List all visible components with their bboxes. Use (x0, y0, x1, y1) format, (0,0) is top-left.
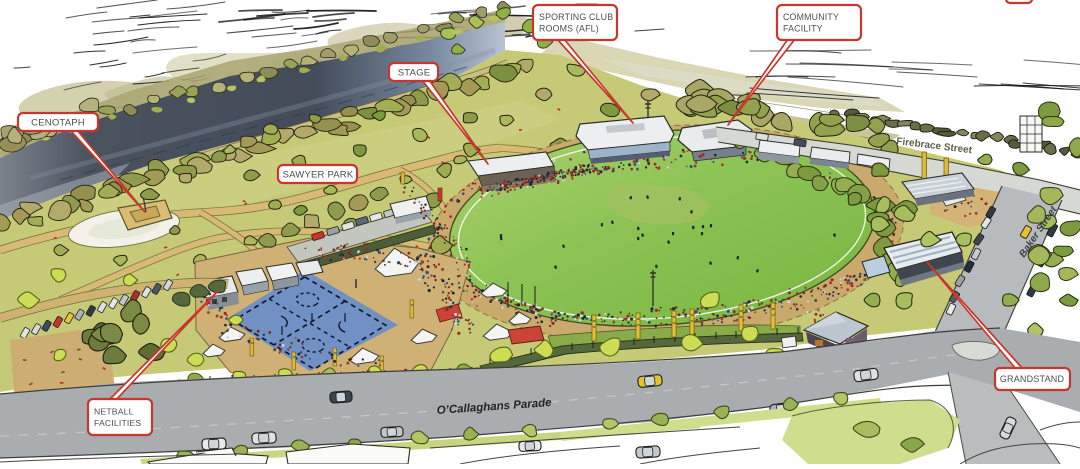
svg-text:COMMUNITY: COMMUNITY (783, 12, 839, 22)
svg-text:GRANDSTAND: GRANDSTAND (1000, 374, 1065, 384)
svg-text:FACILITIES: FACILITIES (94, 418, 141, 428)
svg-text:CENOTAPH: CENOTAPH (31, 117, 85, 128)
svg-text:FACILITY: FACILITY (783, 24, 823, 34)
svg-text:SPORTING CLUB: SPORTING CLUB (539, 12, 613, 22)
svg-text:SAWYER PARK: SAWYER PARK (283, 169, 354, 180)
svg-text:ROOMS (AFL): ROOMS (AFL) (539, 24, 599, 34)
svg-text:STAGE: STAGE (398, 67, 431, 78)
svg-text:NETBALL: NETBALL (94, 406, 134, 416)
